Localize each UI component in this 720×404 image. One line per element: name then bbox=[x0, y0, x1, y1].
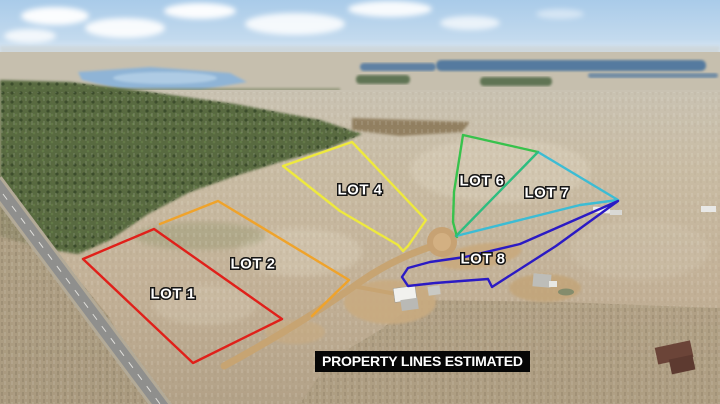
house-gray-wing bbox=[400, 298, 418, 311]
distant-water-band-3 bbox=[588, 73, 718, 78]
shed-small bbox=[549, 281, 557, 287]
lot-2-label: LOT 2 bbox=[230, 256, 275, 273]
lot-8-label: LOT 8 bbox=[460, 251, 505, 268]
distant-water-band-2 bbox=[360, 63, 436, 71]
lot-4-label: LOT 4 bbox=[337, 182, 382, 199]
aerial-property-photo: LOT 1LOT 2LOT 4LOT 6LOT 7LOT 8 PROPERTY … bbox=[0, 0, 720, 404]
lot-1-label: LOT 1 bbox=[150, 286, 195, 303]
lot-7-label: LOT 7 bbox=[524, 185, 569, 202]
banner-text: PROPERTY LINES ESTIMATED bbox=[322, 353, 523, 369]
distant-water-band bbox=[436, 60, 706, 71]
distant-green-strip-1 bbox=[356, 75, 410, 84]
distant-green-strip-2 bbox=[480, 77, 552, 86]
small-pond bbox=[558, 289, 574, 296]
lot-6-label: LOT 6 bbox=[459, 173, 504, 190]
property-lines-banner: PROPERTY LINES ESTIMATED bbox=[315, 351, 530, 372]
house-mid bbox=[532, 273, 551, 288]
trailer-2 bbox=[610, 210, 622, 215]
shed bbox=[428, 285, 441, 296]
cul-de-sac-center bbox=[433, 233, 451, 251]
photo-canvas: LOT 1LOT 2LOT 4LOT 6LOT 7LOT 8 bbox=[0, 0, 720, 404]
lake-highlight bbox=[113, 72, 217, 84]
trailer-far-right bbox=[701, 206, 716, 212]
